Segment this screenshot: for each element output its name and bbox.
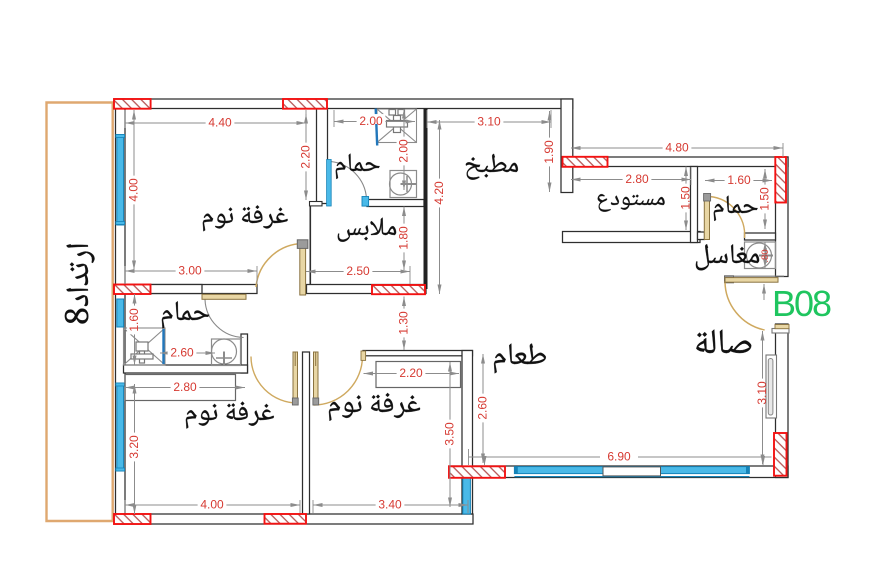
svg-text:2.00: 2.00: [397, 139, 411, 163]
svg-text:4.00: 4.00: [127, 178, 141, 202]
svg-text:2.00: 2.00: [359, 114, 383, 128]
svg-text:3.20: 3.20: [127, 435, 141, 459]
svg-text:4.20: 4.20: [432, 181, 446, 205]
svg-text:1.80: 1.80: [397, 226, 411, 250]
svg-text:3.10: 3.10: [477, 115, 501, 129]
svg-text:2.60: 2.60: [170, 346, 194, 360]
svg-text:1.60: 1.60: [727, 173, 751, 187]
svg-text:2.80: 2.80: [625, 172, 649, 186]
svg-text:6.90: 6.90: [607, 450, 631, 464]
svg-text:4.00: 4.00: [200, 498, 224, 512]
svg-text:1.90: 1.90: [542, 140, 556, 164]
svg-text:3.50: 3.50: [443, 422, 457, 446]
svg-text:2.20: 2.20: [399, 366, 423, 380]
svg-text:3.10: 3.10: [755, 381, 769, 405]
svg-text:1.60: 1.60: [127, 308, 141, 332]
svg-text:4.40: 4.40: [208, 116, 232, 130]
svg-text:2.50: 2.50: [346, 264, 370, 278]
svg-text:1.50: 1.50: [679, 186, 693, 210]
svg-text:1.30: 1.30: [397, 311, 411, 335]
svg-text:2.20: 2.20: [299, 145, 313, 169]
svg-text:2.80: 2.80: [173, 380, 197, 394]
svg-text:2.60: 2.60: [476, 396, 490, 420]
svg-text:4.80: 4.80: [665, 141, 689, 155]
svg-text:.80: .80: [760, 249, 771, 262]
svg-text:3.00: 3.00: [178, 264, 202, 278]
svg-text:3.40: 3.40: [378, 498, 402, 512]
svg-text:B08: B08: [772, 283, 831, 324]
svg-text:1.50: 1.50: [758, 187, 772, 211]
